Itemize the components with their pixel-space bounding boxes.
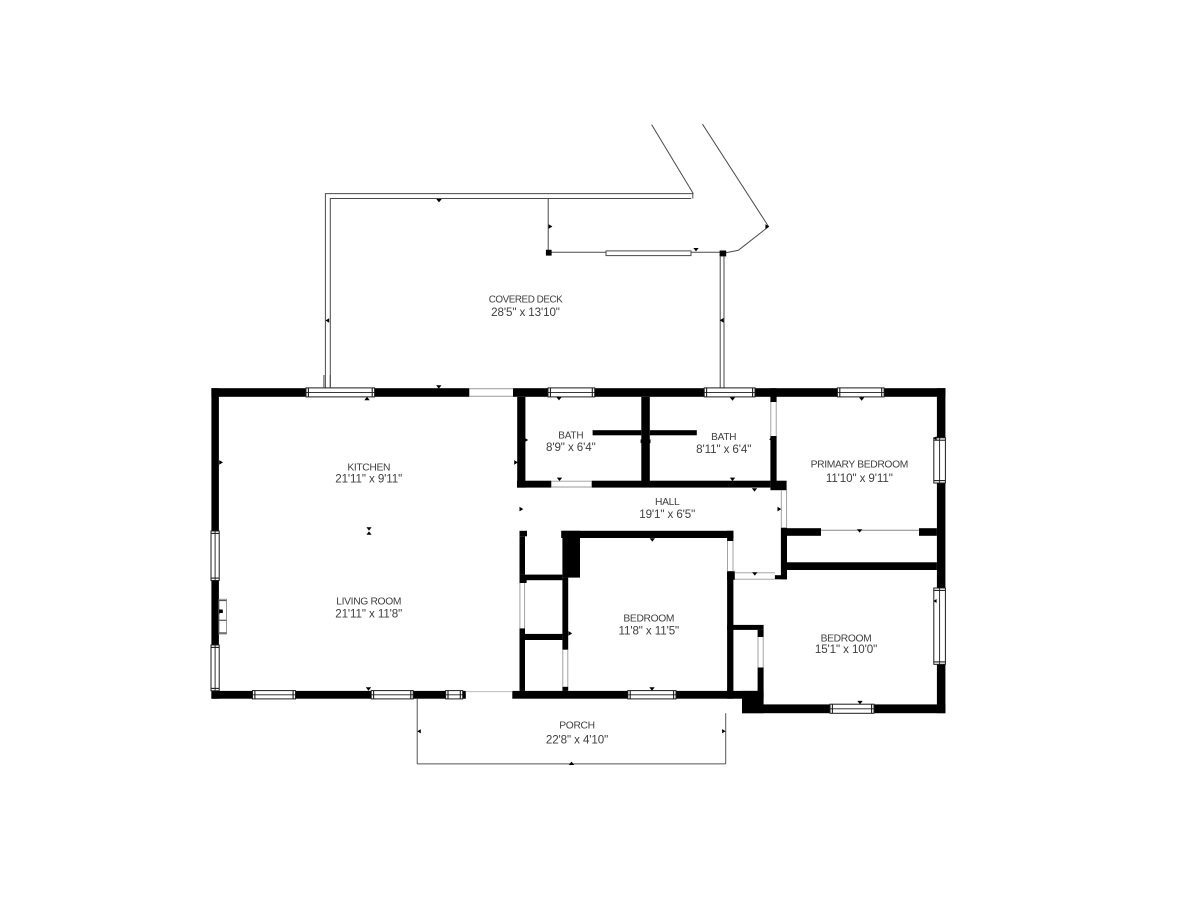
svg-text:11'8" x 11'5": 11'8" x 11'5" (619, 625, 680, 638)
svg-text:21'11" x 9'11": 21'11" x 9'11" (335, 473, 402, 486)
svg-text:8'11" x 6'4": 8'11" x 6'4" (696, 443, 751, 456)
svg-text:22'8" x 4'10": 22'8" x 4'10" (546, 734, 608, 747)
svg-text:BATH: BATH (711, 432, 736, 443)
svg-text:19'1" x 6'5": 19'1" x 6'5" (639, 508, 695, 521)
svg-text:21'11" x 11'8": 21'11" x 11'8" (335, 607, 402, 620)
svg-text:BEDROOM: BEDROOM (623, 613, 674, 624)
svg-text:11'10" x 9'11": 11'10" x 9'11" (826, 472, 893, 485)
svg-text:HALL: HALL (655, 497, 680, 508)
svg-text:LIVING ROOM: LIVING ROOM (336, 596, 401, 607)
svg-text:COVERED DECK: COVERED DECK (489, 294, 563, 305)
svg-text:15'1" x 10'0": 15'1" x 10'0" (815, 643, 877, 656)
svg-text:BATH: BATH (558, 430, 583, 441)
svg-text:PORCH: PORCH (559, 721, 594, 732)
svg-text:28'5" x 13'10": 28'5" x 13'10" (491, 306, 560, 319)
svg-text:8'9" x 6'4": 8'9" x 6'4" (546, 441, 596, 454)
svg-text:PRIMARY BEDROOM: PRIMARY BEDROOM (811, 459, 908, 470)
